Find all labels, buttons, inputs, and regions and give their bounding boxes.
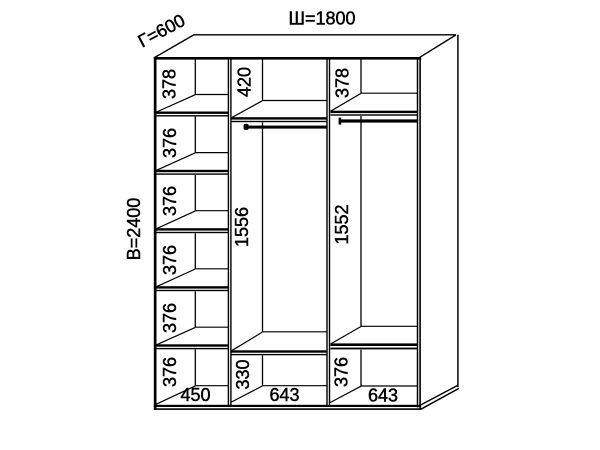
svg-text:376: 376: [160, 128, 180, 158]
svg-text:376: 376: [332, 357, 352, 387]
svg-text:330: 330: [233, 359, 253, 389]
svg-text:376: 376: [160, 186, 180, 216]
svg-text:376: 376: [160, 245, 180, 275]
svg-text:Ш=1800: Ш=1800: [288, 9, 355, 29]
svg-text:1552: 1552: [332, 204, 352, 244]
svg-text:1556: 1556: [232, 207, 252, 247]
svg-text:643: 643: [269, 385, 299, 405]
svg-text:378: 378: [160, 69, 180, 99]
svg-text:378: 378: [333, 68, 353, 98]
svg-text:376: 376: [160, 357, 180, 387]
svg-text:376: 376: [160, 303, 180, 333]
svg-text:450: 450: [180, 385, 210, 405]
svg-text:В=2400: В=2400: [124, 198, 144, 261]
svg-text:643: 643: [368, 386, 398, 406]
svg-text:420: 420: [235, 67, 255, 97]
